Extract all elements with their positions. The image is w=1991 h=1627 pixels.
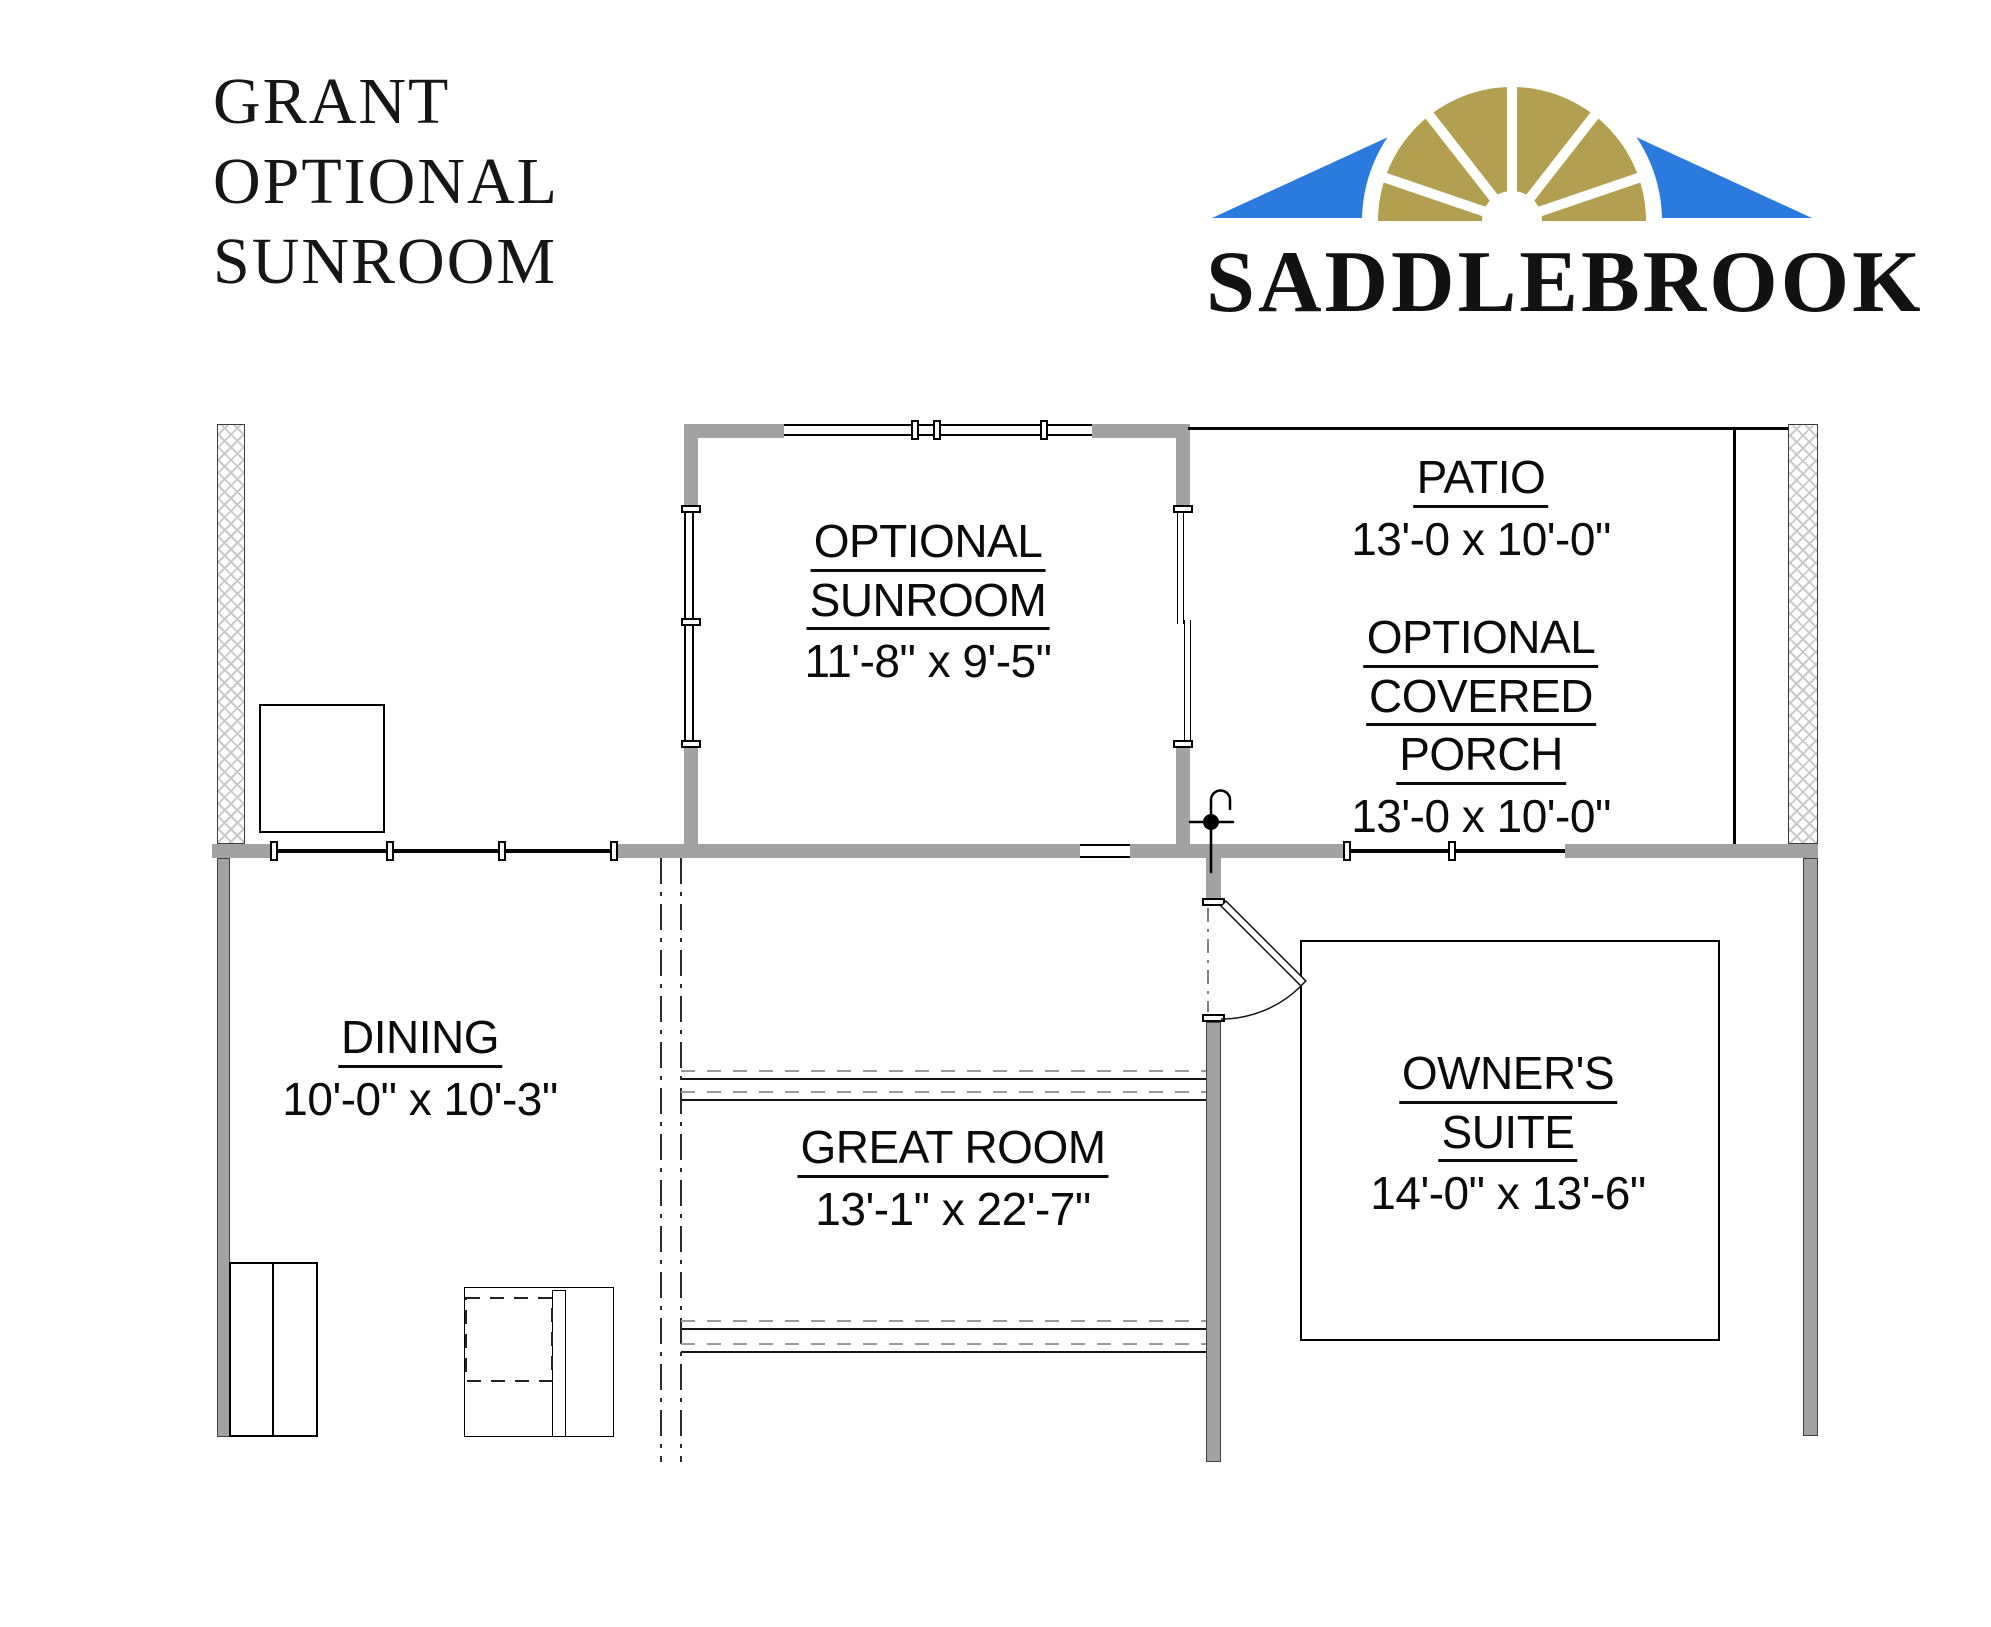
room-dims: 10'-0" x 10'-3" bbox=[282, 1074, 557, 1125]
window-mullion bbox=[498, 841, 506, 861]
door-swing bbox=[1208, 901, 1306, 1019]
wall-sunroom-left-upper bbox=[684, 424, 698, 505]
window-sunroom-right-b bbox=[1184, 620, 1191, 742]
window-mullion bbox=[386, 841, 394, 861]
dining-buffet-counter bbox=[552, 1290, 566, 1437]
ceiling-line bbox=[681, 1099, 1206, 1101]
wall-sunroom-left-lower bbox=[684, 748, 698, 844]
room-label-patio: PATIO 13'-0 x 10'-0" bbox=[1351, 452, 1611, 564]
screen-wall-hatch-right bbox=[1788, 424, 1818, 844]
room-dims: 14'-0" x 13'-6" bbox=[1370, 1168, 1645, 1219]
window-porch bbox=[1351, 849, 1565, 853]
room-label-sunroom: OPTIONAL SUNROOM 11'-8" x 9'-5" bbox=[805, 516, 1052, 687]
room-name: COVERED bbox=[1366, 671, 1596, 727]
patio-edge-right bbox=[1733, 428, 1736, 844]
dining-buffet bbox=[464, 1287, 614, 1437]
window-sunroom-right-a bbox=[1177, 513, 1184, 624]
plan-title: GRANT OPTIONAL SUNROOM bbox=[213, 62, 559, 302]
room-dims: 13'-0 x 10'-0" bbox=[1351, 791, 1611, 842]
room-name: DINING bbox=[338, 1012, 502, 1068]
window-sunroom-left bbox=[684, 513, 694, 740]
wall-corner-left bbox=[212, 844, 270, 858]
room-name: SUITE bbox=[1439, 1107, 1578, 1163]
plan-title-line2: OPTIONAL bbox=[213, 142, 559, 222]
room-dims: 11'-8" x 9'-5" bbox=[805, 636, 1052, 687]
screen-wall-hatch-left bbox=[217, 424, 245, 844]
room-label-great-room: GREAT ROOM 13'-1" x 22'-7" bbox=[797, 1122, 1108, 1234]
window-mullion bbox=[933, 420, 941, 440]
window-cap bbox=[270, 841, 278, 861]
cased-opening-header bbox=[1080, 844, 1130, 858]
wall-band-b bbox=[1130, 844, 1343, 858]
window-cap bbox=[1343, 841, 1351, 861]
dining-cabinet-divider bbox=[272, 1262, 274, 1437]
window-cap bbox=[610, 841, 618, 861]
room-label-dining: DINING 10'-0" x 10'-3" bbox=[282, 1012, 557, 1124]
fanlight-spokes-icon bbox=[1380, 81, 1644, 221]
patio-edge-top bbox=[1188, 427, 1818, 430]
wall-band-c bbox=[1565, 844, 1818, 858]
room-name: OPTIONAL bbox=[1364, 612, 1599, 668]
brand-roof-icon bbox=[1212, 71, 1812, 221]
room-dims: 13'-0 x 10'-0" bbox=[1351, 514, 1611, 565]
window-cap bbox=[681, 740, 701, 748]
window-cap bbox=[1173, 740, 1193, 748]
ceiling-line bbox=[681, 1328, 1206, 1330]
window-mullion bbox=[1040, 420, 1048, 440]
wall-exterior-right bbox=[1803, 858, 1818, 1436]
wall-band-a bbox=[618, 844, 1080, 858]
plan-title-line3: SUNROOM bbox=[213, 222, 559, 302]
plan-title-line1: GRANT bbox=[213, 62, 559, 142]
wall-sunroom-right-lower bbox=[1176, 748, 1190, 844]
room-name: SUNROOM bbox=[807, 575, 1050, 631]
door-jamb-cap bbox=[1202, 898, 1225, 906]
ac-pad bbox=[259, 704, 385, 833]
room-name: OWNER'S bbox=[1399, 1048, 1617, 1104]
room-label-owners-suite: OWNER'S SUITE 14'-0" x 13'-6" bbox=[1370, 1048, 1645, 1219]
column-grid-lines bbox=[661, 858, 681, 1462]
wall-sunroom-right-upper bbox=[1176, 424, 1190, 505]
room-dims: 13'-1" x 22'-7" bbox=[797, 1184, 1108, 1235]
floorplan-page: GRANT OPTIONAL SUNROOM SADDLEBROOK bbox=[0, 0, 1991, 1627]
wall-divider-main bbox=[1206, 1022, 1221, 1462]
wall-divider-stub bbox=[1206, 858, 1221, 898]
window-mullion bbox=[1448, 841, 1456, 861]
room-name: OPTIONAL bbox=[811, 516, 1046, 572]
window-cap bbox=[681, 505, 701, 513]
window-dining bbox=[278, 849, 610, 853]
wall-sunroom-top-left bbox=[684, 424, 784, 438]
room-name: GREAT ROOM bbox=[797, 1122, 1108, 1178]
window-cap bbox=[1173, 505, 1193, 513]
brand-wordmark: SADDLEBROOK bbox=[1206, 232, 1862, 333]
window-mullion bbox=[911, 420, 919, 440]
door-jamb-cap bbox=[1202, 1014, 1225, 1022]
room-label-porch: OPTIONAL COVERED PORCH 13'-0 x 10'-0" bbox=[1351, 612, 1611, 841]
ceiling-line bbox=[681, 1351, 1206, 1353]
ceiling-line bbox=[681, 1078, 1206, 1080]
wall-sunroom-top-right bbox=[1092, 424, 1188, 438]
room-name: PORCH bbox=[1396, 729, 1566, 785]
window-mullion bbox=[681, 618, 701, 626]
room-name: PATIO bbox=[1414, 452, 1549, 508]
